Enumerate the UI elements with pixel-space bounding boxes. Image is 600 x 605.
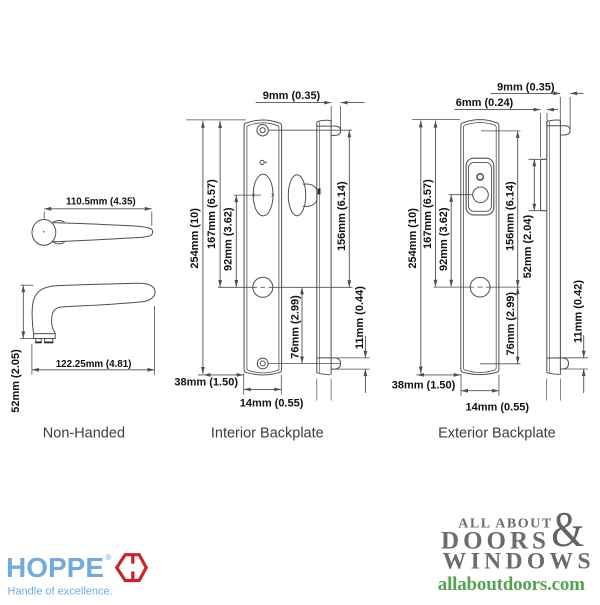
svg-text:11mm (0.42): 11mm (0.42) — [572, 280, 584, 343]
svg-text:38mm (1.50): 38mm (1.50) — [392, 380, 456, 392]
svg-text:254mm (10): 254mm (10) — [407, 208, 419, 269]
svg-text:76mm (2.99): 76mm (2.99) — [290, 295, 302, 359]
svg-text:9mm (0.35): 9mm (0.35) — [497, 81, 555, 93]
svg-text:allaboutdoors.com: allaboutdoors.com — [438, 574, 585, 595]
svg-text:38mm (1.50): 38mm (1.50) — [174, 377, 238, 389]
svg-text:14mm (0.55): 14mm (0.55) — [240, 397, 304, 409]
svg-text:76mm (2.99): 76mm (2.99) — [505, 292, 517, 356]
svg-text:122.25mm (4.81): 122.25mm (4.81) — [56, 359, 132, 370]
svg-text:9mm (0.35): 9mm (0.35) — [263, 90, 321, 102]
svg-text:156mm (6.14): 156mm (6.14) — [504, 181, 516, 251]
svg-text:156mm (6.14): 156mm (6.14) — [336, 181, 348, 251]
svg-text:167mm (6.57): 167mm (6.57) — [422, 179, 434, 249]
svg-text:HOPPE: HOPPE — [6, 552, 104, 583]
svg-text:92mm (3.62): 92mm (3.62) — [438, 207, 450, 271]
svg-text:14mm (0.55): 14mm (0.55) — [466, 402, 530, 414]
svg-text:Exterior Backplate: Exterior Backplate — [438, 426, 556, 442]
svg-text:6mm (0.24): 6mm (0.24) — [456, 97, 514, 109]
svg-text:52mm (2.04): 52mm (2.04) — [522, 214, 534, 278]
svg-text:Handle of excellence.: Handle of excellence. — [8, 585, 113, 597]
svg-text:92mm (3.62): 92mm (3.62) — [222, 207, 234, 271]
svg-text:®: ® — [106, 553, 112, 562]
svg-text:Non-Handed: Non-Handed — [43, 426, 125, 442]
svg-text:110.5mm (4.35): 110.5mm (4.35) — [66, 196, 136, 207]
svg-text:167mm (6.57): 167mm (6.57) — [206, 179, 218, 249]
svg-text:Interior Backplate: Interior Backplate — [211, 426, 324, 442]
svg-text:254mm (10): 254mm (10) — [189, 208, 201, 269]
svg-text:WINDOWS: WINDOWS — [443, 549, 595, 575]
svg-text:52mm (2.05): 52mm (2.05) — [10, 349, 22, 413]
svg-text:11mm (0.44): 11mm (0.44) — [354, 286, 366, 349]
